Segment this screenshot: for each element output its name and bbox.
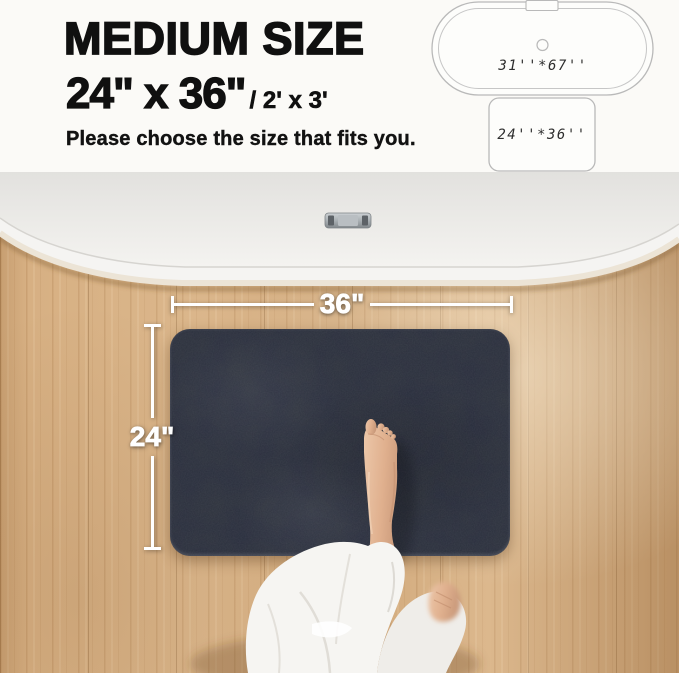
tub-faucet-notch-icon <box>526 1 558 11</box>
size-line: 24" x 36" / 2' x 3' <box>66 72 328 116</box>
page-title: MEDIUM SIZE <box>64 16 365 61</box>
size-info-header: MEDIUM SIZE 24" x 36" / 2' x 3' Please c… <box>0 0 679 172</box>
size-diagrams: 31''*67'' 24''*36'' <box>425 0 679 172</box>
person <box>0 172 679 673</box>
photo-scene: 36" 24" <box>0 172 679 673</box>
size-secondary-text: / 2' x 3' <box>250 89 328 113</box>
product-image: MEDIUM SIZE 24" x 36" / 2' x 3' Please c… <box>0 0 679 673</box>
size-note: Please choose the size that fits you. <box>66 128 416 151</box>
person-hand <box>428 582 460 622</box>
mat-size-label: 24''*36'' <box>497 127 586 143</box>
bathtub-size-label: 31''*67'' <box>497 58 587 74</box>
mat-diagram-icon: 24''*36'' <box>489 98 595 171</box>
bathtub-diagram-icon: 31''*67'' <box>432 1 653 96</box>
size-primary-text: 24" x 36" <box>66 72 246 116</box>
